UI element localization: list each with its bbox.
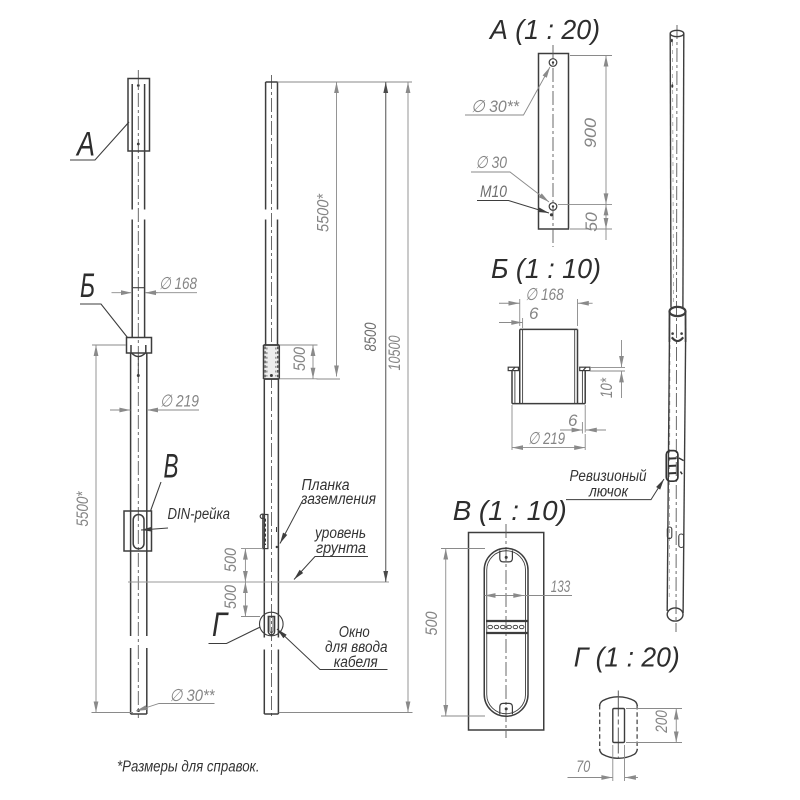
svg-text:8500: 8500 bbox=[361, 322, 380, 351]
svg-text:А (1 : 20): А (1 : 20) bbox=[488, 14, 600, 45]
svg-text:500: 500 bbox=[422, 611, 441, 635]
svg-text:Г (1 : 20): Г (1 : 20) bbox=[574, 642, 680, 673]
svg-text:∅ 30**: ∅ 30** bbox=[170, 686, 216, 705]
svg-text:6: 6 bbox=[529, 304, 539, 323]
svg-text:Г: Г bbox=[212, 606, 229, 644]
svg-text:M10: M10 bbox=[480, 182, 507, 201]
svg-text:∅ 30: ∅ 30 bbox=[476, 153, 508, 172]
svg-text:10*: 10* bbox=[597, 377, 616, 398]
svg-text:*Размеры для справок.: *Размеры для справок. bbox=[117, 759, 260, 776]
svg-text:грунта: грунта bbox=[316, 540, 366, 557]
svg-text:Ревизионый: Ревизионый bbox=[570, 468, 647, 485]
svg-text:лючок: лючок bbox=[588, 484, 628, 501]
svg-text:∅ 168: ∅ 168 bbox=[525, 285, 564, 304]
svg-text:500: 500 bbox=[290, 347, 309, 371]
svg-text:Б: Б bbox=[80, 267, 95, 305]
svg-text:50: 50 bbox=[582, 212, 601, 232]
svg-text:900: 900 bbox=[581, 117, 600, 148]
svg-text:200: 200 bbox=[652, 710, 671, 734]
svg-text:500: 500 bbox=[221, 548, 240, 572]
svg-text:DIN-рейка: DIN-рейка bbox=[168, 506, 231, 523]
svg-text:∅ 219: ∅ 219 bbox=[160, 392, 199, 411]
svg-text:заземления: заземления bbox=[300, 491, 376, 508]
svg-text:кабеля: кабеля bbox=[334, 654, 378, 671]
svg-text:133: 133 bbox=[551, 577, 571, 596]
svg-text:∅ 30**: ∅ 30** bbox=[471, 97, 520, 116]
svg-text:10500: 10500 bbox=[385, 335, 404, 370]
svg-text:500: 500 bbox=[221, 585, 240, 609]
svg-text:70: 70 bbox=[576, 757, 590, 776]
svg-text:А: А bbox=[75, 126, 95, 164]
svg-text:∅ 219: ∅ 219 bbox=[528, 429, 565, 448]
svg-text:6: 6 bbox=[568, 411, 578, 430]
svg-text:5500*: 5500* bbox=[73, 490, 92, 526]
svg-text:В (1 : 10): В (1 : 10) bbox=[453, 495, 567, 526]
svg-text:5500*: 5500* bbox=[314, 193, 333, 232]
svg-text:В: В bbox=[164, 448, 179, 486]
svg-text:Б (1 : 10): Б (1 : 10) bbox=[491, 253, 601, 284]
svg-text:∅ 168: ∅ 168 bbox=[159, 274, 197, 293]
